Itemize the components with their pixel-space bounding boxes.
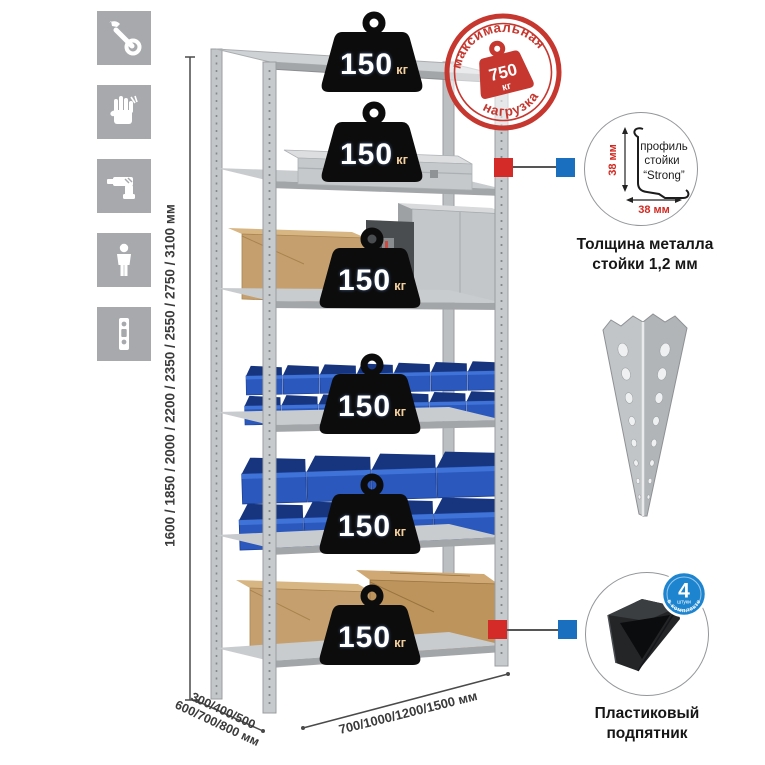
max-load-stamp: максимальная нагрузка 750 кг <box>437 6 569 138</box>
weight-value: 150 <box>340 48 393 81</box>
weight-value: 150 <box>340 138 393 171</box>
weight-unit: кг <box>394 404 406 419</box>
profile-label: профиль стойки “Strong” <box>640 141 688 182</box>
weight-unit: кг <box>394 635 406 650</box>
connector-line-bottom <box>507 629 559 631</box>
shelf-weight-3: 150кг <box>314 226 430 312</box>
profile-vertical-dim: 38 мм <box>607 144 619 176</box>
weight-value: 150 <box>338 510 391 543</box>
svg-text:стойки: стойки <box>644 155 679 167</box>
profile-caption: Толщина металла стойки 1,2 мм <box>568 235 722 276</box>
weight-unit: кг <box>394 524 406 539</box>
infographic-canvas: 1600 / 1850 / 2000 / 2200 / 2350 / 2550 … <box>0 0 765 765</box>
shelf-weight-6: 150кг <box>314 583 430 669</box>
connector-line-top <box>513 166 557 168</box>
marker-blue-bottom <box>558 620 577 639</box>
angle-post-image <box>595 306 695 526</box>
foot-caption: Пластиковый подпятник <box>570 704 724 745</box>
weight-unit: кг <box>396 152 408 167</box>
svg-text:“Strong”: “Strong” <box>643 170 685 182</box>
weight-value: 150 <box>338 621 391 654</box>
weight-unit: кг <box>396 62 408 77</box>
weight-unit: кг <box>394 278 406 293</box>
included-count-badge: 4 штуки в комплекте <box>660 570 708 618</box>
shelf-weight-5: 150кг <box>314 472 430 558</box>
shelf-weight-4: 150кг <box>314 352 430 438</box>
marker-blue-top <box>556 158 575 177</box>
weight-value: 150 <box>338 390 391 423</box>
shelf-weight-2: 150кг <box>316 100 432 186</box>
svg-text:профиль: профиль <box>640 141 688 153</box>
marker-red-bottom <box>488 620 507 639</box>
weight-value: 150 <box>338 264 391 297</box>
profile-horizontal-dim: 38 мм <box>638 204 670 216</box>
badge-word: штуки <box>677 600 691 606</box>
shelf-weight-1: 150кг <box>316 10 432 96</box>
height-dimension-label: 1600 / 1850 / 2000 / 2200 / 2350 / 2550 … <box>163 76 178 676</box>
marker-red-top <box>494 158 513 177</box>
post-profile-detail: 38 мм 38 мм профиль стойки “Strong” <box>584 112 698 226</box>
